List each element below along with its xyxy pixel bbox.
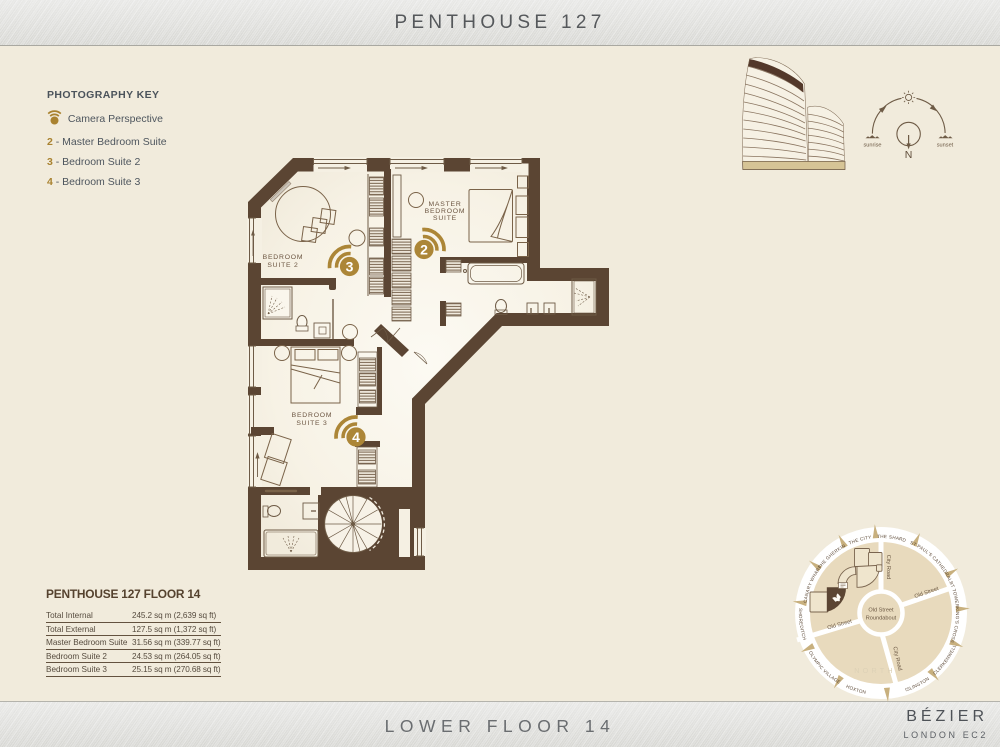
svg-text:SUITE 2: SUITE 2: [267, 262, 298, 269]
svg-text:2: 2: [420, 242, 428, 258]
svg-text:sunrise: sunrise: [863, 143, 881, 149]
svg-text:SUITE 3: SUITE 3: [296, 420, 327, 427]
svg-text:BEDROOM: BEDROOM: [292, 412, 333, 419]
svg-text:City Road: City Road: [885, 555, 891, 580]
svg-text:MASTER: MASTER: [428, 201, 461, 208]
svg-text:NORTH: NORTH: [854, 666, 895, 675]
svg-text:BEDROOM: BEDROOM: [263, 254, 304, 261]
svg-text:Old Street: Old Street: [868, 608, 894, 614]
svg-text:N: N: [905, 149, 913, 161]
svg-text:4: 4: [352, 429, 360, 445]
svg-text:SUITE: SUITE: [433, 215, 457, 222]
svg-text:3: 3: [346, 259, 354, 275]
svg-text:Roundabout: Roundabout: [866, 616, 897, 622]
svg-text:sunset: sunset: [937, 143, 954, 149]
svg-text:BEDROOM: BEDROOM: [425, 208, 466, 215]
